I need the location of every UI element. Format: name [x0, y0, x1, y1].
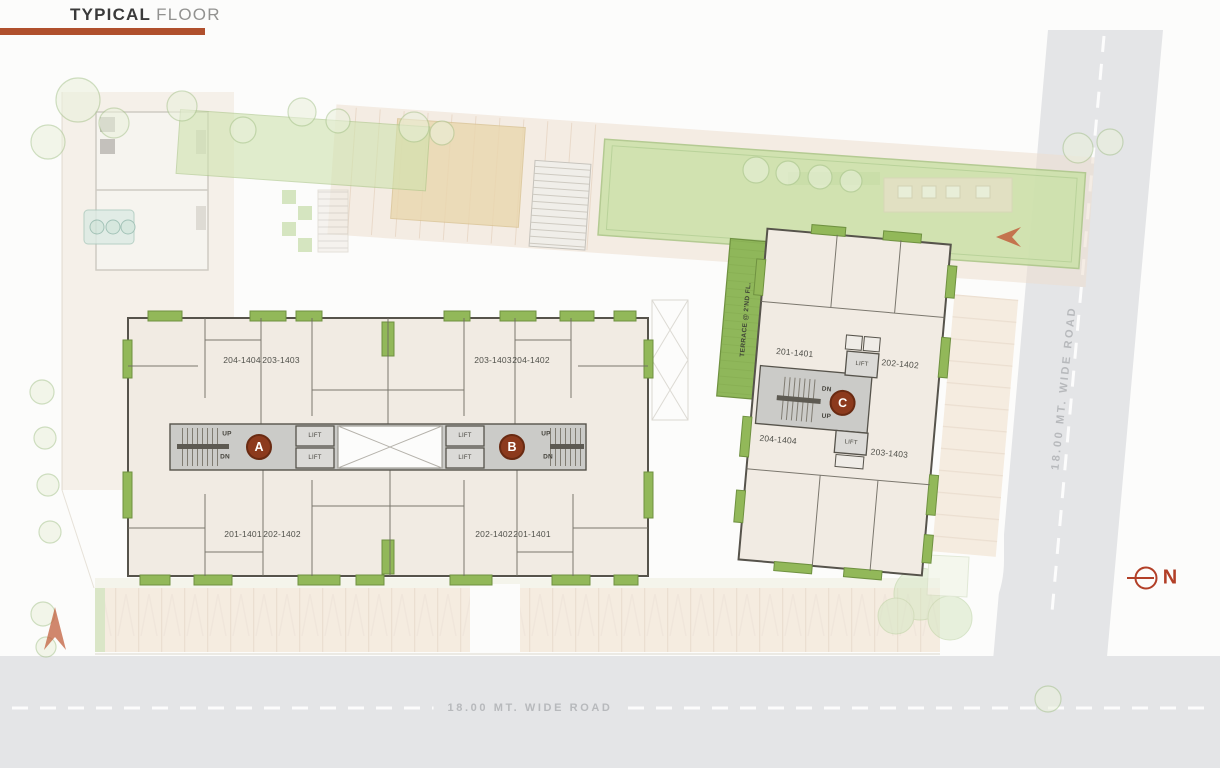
parking-strip — [95, 578, 940, 654]
lift-a-2 — [296, 448, 334, 468]
lift-c-top — [845, 351, 879, 378]
block-a-badge: A — [246, 434, 272, 460]
title-accent-bar — [0, 28, 205, 35]
pool — [84, 210, 135, 244]
stair-b — [546, 428, 584, 466]
title-primary: TYPICAL — [70, 5, 151, 24]
lift-c-bottom — [834, 430, 868, 455]
ramp-structure — [652, 300, 688, 420]
lift-b-1 — [446, 426, 484, 446]
title-secondary: FLOOR — [156, 5, 221, 24]
building-c — [702, 218, 959, 585]
bottom-road-label: 18.00 MT. WIDE ROAD — [434, 700, 627, 716]
building-ab — [123, 311, 653, 585]
void-x — [338, 426, 442, 468]
parking-strip-c — [932, 294, 1018, 557]
floor-plan-drawing — [0, 0, 1220, 768]
plaza — [282, 190, 348, 252]
typical-floor-plan: TYPICALFLOOR 204-1404 203-1403 201-1401 … — [0, 0, 1220, 768]
north-label: N — [1163, 567, 1177, 590]
lift-b-2 — [446, 448, 484, 468]
north-symbol — [1127, 568, 1157, 589]
block-b-badge: B — [499, 434, 525, 460]
page-title: TYPICALFLOOR — [70, 5, 221, 25]
lift-a-1 — [296, 426, 334, 446]
right-road — [992, 30, 1163, 672]
